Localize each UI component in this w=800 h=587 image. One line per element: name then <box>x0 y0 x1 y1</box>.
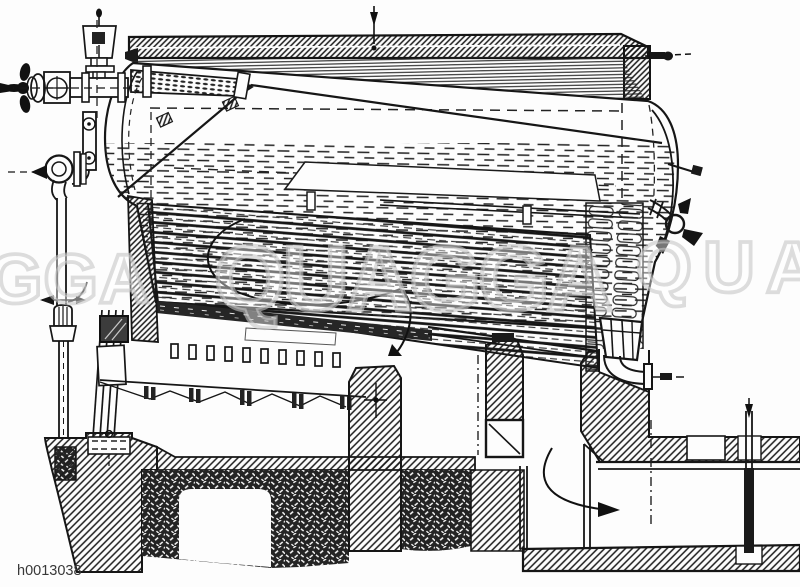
svg-text:QUAGGA: QUAGGA <box>214 228 612 330</box>
svg-text:GGA: GGA <box>0 240 150 318</box>
svg-text:h0013038: h0013038 <box>17 563 82 579</box>
svg-text:QUA: QUA <box>636 228 800 308</box>
